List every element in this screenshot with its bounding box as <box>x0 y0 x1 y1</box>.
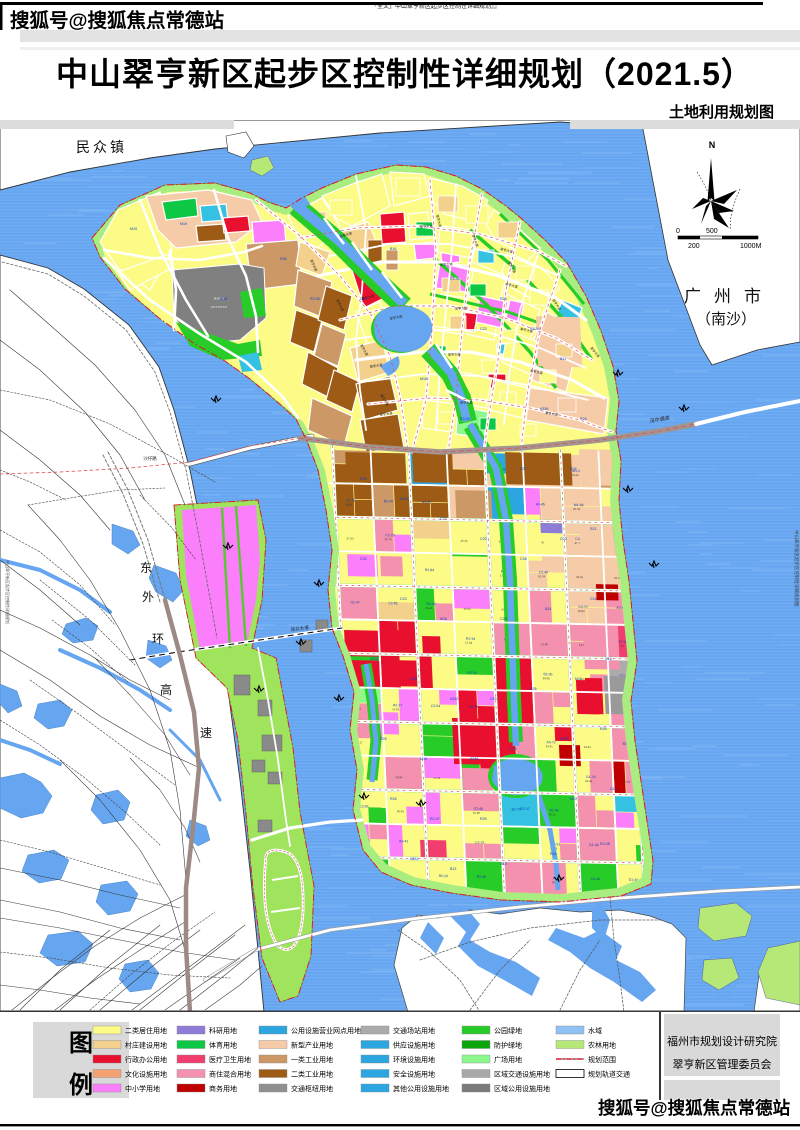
svg-text:G11: G11 <box>610 787 617 791</box>
svg-text:M16: M16 <box>440 617 447 621</box>
svg-text:R26: R26 <box>410 677 417 681</box>
svg-text:文化设施用地: 文化设施用地 <box>125 1070 167 1079</box>
svg-text:R2-46: R2-46 <box>477 875 487 879</box>
svg-text:R25: R25 <box>380 737 387 741</box>
svg-text:R2-04: R2-04 <box>460 417 470 421</box>
svg-text:C2-75: C2-75 <box>475 841 485 845</box>
svg-text:体育用地: 体育用地 <box>209 1041 237 1050</box>
svg-text:村庄建设用地: 村庄建设用地 <box>125 1041 167 1050</box>
svg-text:高: 高 <box>160 682 172 697</box>
svg-text:B2-43: B2-43 <box>384 499 393 503</box>
svg-text:A3-45: A3-45 <box>536 502 545 506</box>
svg-text:10.83: 10.83 <box>578 609 586 613</box>
svg-text:G1-47: G1-47 <box>350 600 360 604</box>
svg-text:52.24: 52.24 <box>538 574 546 578</box>
svg-text:中山翠亨新区起步区控制性详细规划图: 中山翠亨新区起步区控制性详细规划图 <box>793 530 800 607</box>
svg-text:商务用地: 商务用地 <box>209 1084 237 1093</box>
svg-text:M17: M17 <box>570 797 577 801</box>
svg-text:R29: R29 <box>480 817 487 821</box>
svg-text:24.46: 24.46 <box>585 779 593 783</box>
svg-text:R26: R26 <box>530 687 537 691</box>
svg-text:二类居住用地: 二类居住用地 <box>125 1026 167 1035</box>
svg-text:R24: R24 <box>580 417 587 421</box>
svg-text:M18: M18 <box>420 377 427 381</box>
svg-text:公用设施营业网点用地: 公用设施营业网点用地 <box>291 1026 361 1035</box>
svg-text:C24: C24 <box>590 597 597 601</box>
svg-text:科研用地: 科研用地 <box>209 1026 237 1035</box>
svg-text:23.43: 23.43 <box>584 745 592 749</box>
svg-text:翠亨大道: 翠亨大道 <box>440 261 454 267</box>
svg-text:一类工业用地: 一类工业用地 <box>291 1055 333 1064</box>
svg-text:R24: R24 <box>570 467 577 471</box>
svg-text:C28: C28 <box>520 557 527 561</box>
svg-text:规划轨道交通: 规划轨道交通 <box>588 1070 630 1079</box>
svg-text:R2-24: R2-24 <box>467 671 477 675</box>
svg-text:16.94: 16.94 <box>395 775 403 779</box>
svg-text:B13: B13 <box>450 867 456 871</box>
svg-text:新型产业用地: 新型产业用地 <box>291 1041 333 1050</box>
svg-text:R26: R26 <box>390 797 397 801</box>
svg-text:G14: G14 <box>500 862 507 866</box>
svg-text:C23: C23 <box>400 597 407 601</box>
svg-text:A336: A336 <box>470 757 478 761</box>
svg-text:39.54: 39.54 <box>464 607 472 611</box>
svg-text:广场用地: 广场用地 <box>494 1055 522 1064</box>
svg-text:医疗卫生用地: 医疗卫生用地 <box>209 1055 251 1064</box>
svg-text:R2-29: R2-29 <box>439 874 449 878</box>
svg-text:26.39: 26.39 <box>573 507 581 511</box>
svg-text:中小学用地: 中小学用地 <box>125 1084 160 1093</box>
svg-text:B11: B11 <box>560 357 566 361</box>
svg-text:×××××××: ××××××× <box>211 304 228 309</box>
svg-text:A335: A335 <box>370 657 378 661</box>
svg-text:17.23: 17.23 <box>433 776 441 780</box>
svg-text:B16: B16 <box>390 247 396 251</box>
svg-text:搜狐号@搜狐焦点常德站: 搜狐号@搜狐焦点常德站 <box>598 1098 791 1118</box>
svg-text:54.90: 54.90 <box>543 676 551 680</box>
svg-text:35.53: 35.53 <box>397 809 405 813</box>
svg-text:200: 200 <box>688 243 700 250</box>
svg-text:R2-84: R2-84 <box>425 568 435 572</box>
svg-text:M18: M18 <box>220 297 227 301</box>
svg-text:搜狐号@搜狐焦点常德站: 搜狐号@搜狐焦点常德站 <box>10 9 225 32</box>
svg-text:37.53: 37.53 <box>346 536 354 540</box>
svg-text:C22: C22 <box>480 537 487 541</box>
svg-text:38.85: 38.85 <box>345 502 353 506</box>
svg-text:土地利用规划图: 土地利用规划图 <box>669 103 774 121</box>
svg-text:25.21: 25.21 <box>549 812 557 816</box>
svg-text:行政办公用地: 行政办公用地 <box>125 1055 167 1064</box>
svg-text:翠亨新区管理委员会: 翠亨新区管理委员会 <box>673 1057 772 1071</box>
svg-text:A3-43: A3-43 <box>422 500 431 504</box>
svg-text:11.49: 11.49 <box>541 642 548 646</box>
svg-text:G16: G16 <box>605 657 612 661</box>
svg-text:R2-09: R2-09 <box>450 277 460 281</box>
svg-text:C2-81: C2-81 <box>360 804 370 808</box>
svg-text:R26: R26 <box>280 257 287 261</box>
svg-text:「全文」中山翠亨新区起步区控制性详细规划』』: 「全文」中山翠亨新区起步区控制性详细规划』』 <box>371 2 500 10</box>
svg-text:中山翠亨新区起步区控制性详细规划: 中山翠亨新区起步区控制性详细规划 <box>5 560 11 624</box>
svg-text:（南沙）: （南沙） <box>696 311 756 328</box>
svg-text:东: 东 <box>140 561 152 575</box>
svg-text:速: 速 <box>200 726 212 740</box>
svg-text:防护绿地: 防护绿地 <box>494 1041 522 1050</box>
svg-text:C22: C22 <box>480 327 487 331</box>
svg-text:A331: A331 <box>410 857 418 861</box>
svg-text:商住混合用地: 商住混合用地 <box>209 1070 251 1079</box>
svg-text:A333: A333 <box>450 697 458 701</box>
svg-text:C2-54: C2-54 <box>431 704 441 708</box>
svg-text:R25: R25 <box>600 727 607 731</box>
svg-text:民众镇: 民众镇 <box>76 139 127 155</box>
svg-text:R27: R27 <box>520 467 527 471</box>
svg-text:C29: C29 <box>500 617 507 621</box>
svg-text:0: 0 <box>676 228 680 235</box>
svg-text:环: 环 <box>152 632 164 646</box>
svg-text:区域交通设施用地: 区域交通设施用地 <box>494 1070 550 1079</box>
svg-text:G1-38: G1-38 <box>589 843 599 847</box>
svg-text:二类工业用地: 二类工业用地 <box>291 1070 333 1079</box>
svg-text:供应设施用地: 供应设施用地 <box>393 1041 435 1050</box>
svg-text:公园绿地: 公园绿地 <box>494 1026 522 1035</box>
svg-text:A3-41: A3-41 <box>399 839 408 843</box>
svg-text:C23: C23 <box>560 537 567 541</box>
svg-text:500: 500 <box>706 228 718 235</box>
svg-text:区域公用设施用地: 区域公用设施用地 <box>494 1084 550 1093</box>
svg-text:安全设施用地: 安全设施用地 <box>393 1070 435 1079</box>
svg-text:20.79: 20.79 <box>384 537 392 541</box>
svg-text:M1-65: M1-65 <box>469 705 479 709</box>
svg-text:交通枢纽用地: 交通枢纽用地 <box>291 1084 333 1093</box>
svg-text:R2-08: R2-08 <box>600 842 610 846</box>
svg-text:10.48: 10.48 <box>473 811 481 815</box>
svg-text:46.41: 46.41 <box>426 606 434 610</box>
svg-text:交通场站用地: 交通场站用地 <box>393 1026 435 1035</box>
svg-text:M19: M19 <box>130 227 137 231</box>
svg-text:A335: A335 <box>400 497 408 501</box>
svg-text:外: 外 <box>142 590 154 604</box>
svg-text:R24: R24 <box>360 477 367 481</box>
svg-text:福州市规划设计研究院: 福州市规划设计研究院 <box>667 1034 777 1048</box>
svg-text:R2-07: R2-07 <box>430 817 440 821</box>
svg-text:环境设施用地: 环境设施用地 <box>393 1055 435 1064</box>
svg-text:20.32: 20.32 <box>460 539 468 543</box>
svg-text:规划范围: 规划范围 <box>588 1055 616 1064</box>
svg-text:翠亨大道: 翠亨大道 <box>460 400 474 405</box>
svg-text:M19: M19 <box>180 222 187 226</box>
svg-text:C27: C27 <box>440 517 447 521</box>
svg-text:水域: 水域 <box>588 1026 602 1035</box>
svg-text:翠亨大道: 翠亨大道 <box>455 305 469 311</box>
svg-text:广州市: 广州市 <box>684 287 774 306</box>
svg-text:N: N <box>709 140 716 150</box>
svg-text:C2-49: C2-49 <box>591 877 601 881</box>
svg-text:A333: A333 <box>560 737 568 741</box>
svg-text:沙仔路: 沙仔路 <box>143 455 157 462</box>
svg-text:C24: C24 <box>360 557 367 561</box>
svg-text:C2-82: C2-82 <box>388 601 398 605</box>
svg-text:翠亨大道: 翠亨大道 <box>448 351 462 357</box>
svg-text:17.92: 17.92 <box>623 780 631 784</box>
svg-text:R2-05: R2-05 <box>310 297 320 301</box>
svg-text:农林用地: 农林用地 <box>588 1041 616 1050</box>
svg-text:M11: M11 <box>575 677 582 681</box>
svg-text:M15: M15 <box>420 757 427 761</box>
svg-text:C28: C28 <box>510 747 517 751</box>
svg-text:翠亨大道: 翠亨大道 <box>420 223 434 229</box>
svg-text:33.91: 33.91 <box>546 744 554 748</box>
svg-text:27.18: 27.18 <box>465 641 473 645</box>
svg-text:其他公用设施用地: 其他公用设施用地 <box>393 1084 449 1093</box>
svg-text:B14: B14 <box>545 607 551 611</box>
svg-text:例: 例 <box>69 1072 93 1099</box>
svg-text:图: 图 <box>69 1030 93 1057</box>
svg-text:R24: R24 <box>550 852 557 856</box>
svg-text:C25: C25 <box>490 697 497 701</box>
svg-text:R21: R21 <box>590 527 597 531</box>
svg-text:中山翠亨新区起步区控制性详细规划（2021.5）: 中山翠亨新区起步区控制性详细规划（2021.5） <box>56 56 754 92</box>
svg-text:1000M: 1000M <box>740 243 762 250</box>
svg-text:R28: R28 <box>500 297 507 301</box>
svg-text:12.52: 12.52 <box>392 707 400 711</box>
svg-text:25.49: 25.49 <box>571 473 579 477</box>
svg-text:R2-07: R2-07 <box>520 807 530 811</box>
